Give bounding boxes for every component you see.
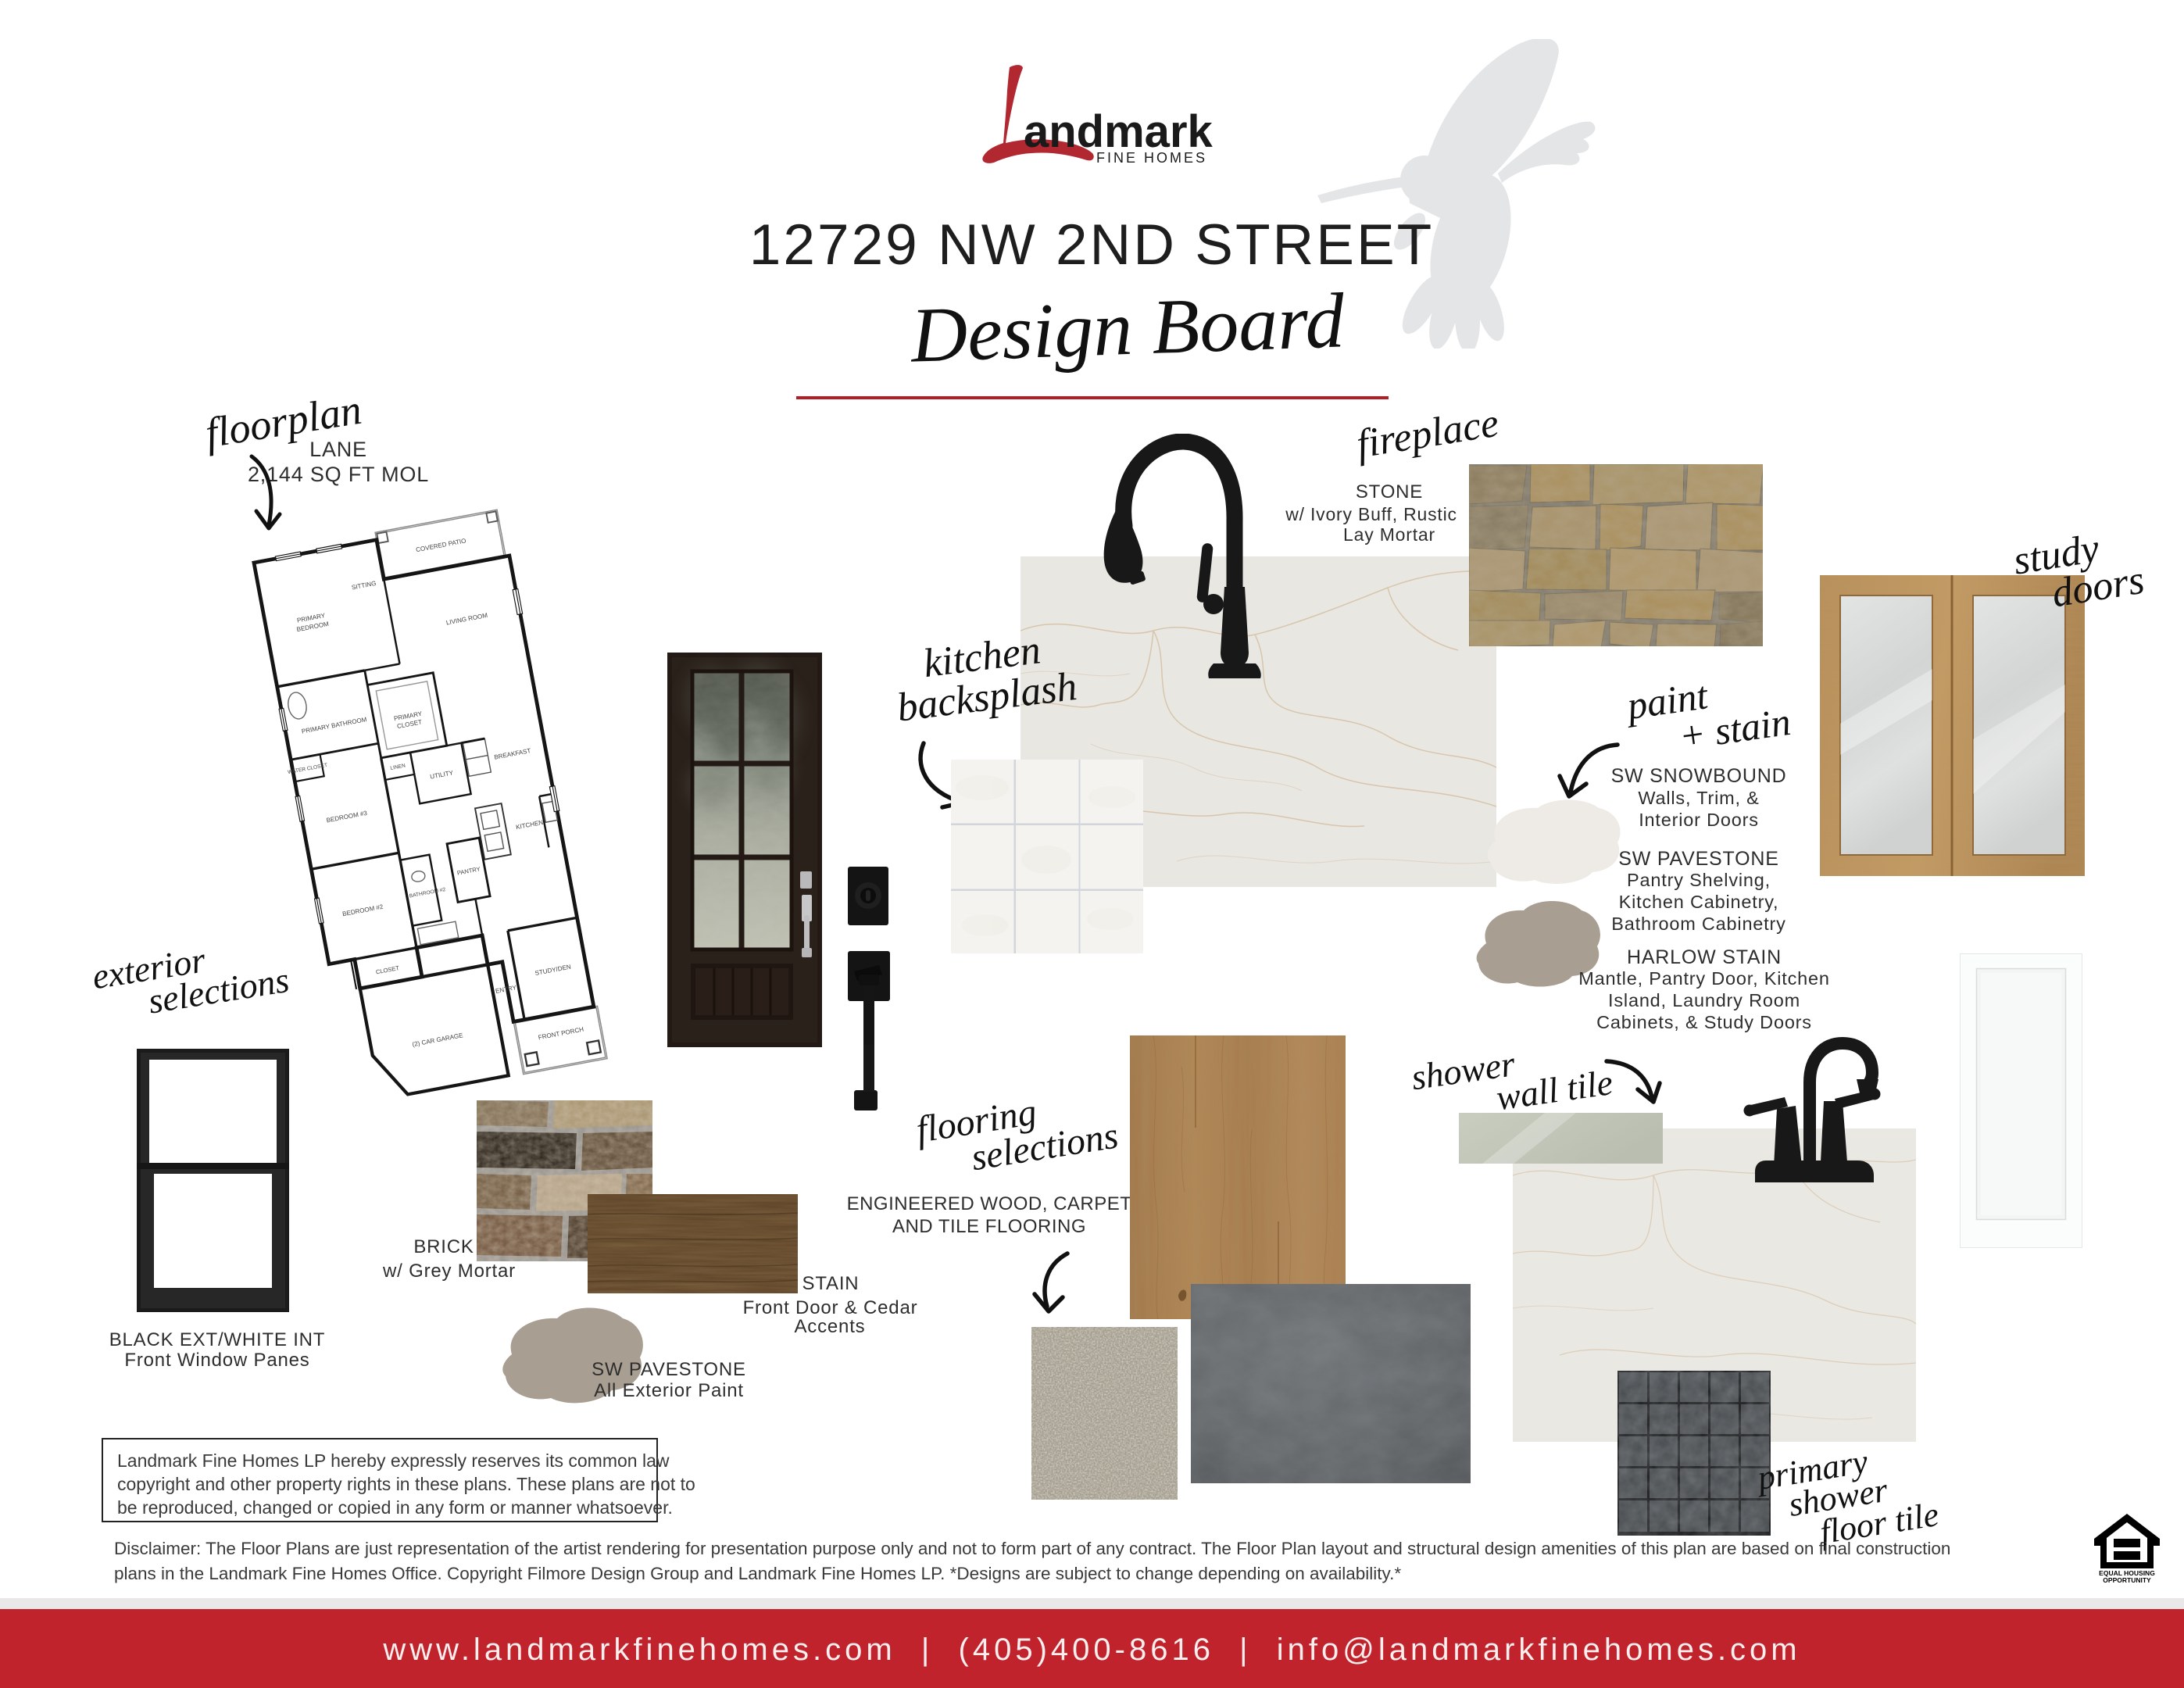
svg-text:FRONT PORCH: FRONT PORCH <box>538 1026 584 1042</box>
svg-text:FINE HOMES: FINE HOMES <box>1096 150 1207 166</box>
svg-text:OPPORTUNITY: OPPORTUNITY <box>2103 1576 2151 1584</box>
svg-text:COVERED PATIO: COVERED PATIO <box>416 537 467 553</box>
